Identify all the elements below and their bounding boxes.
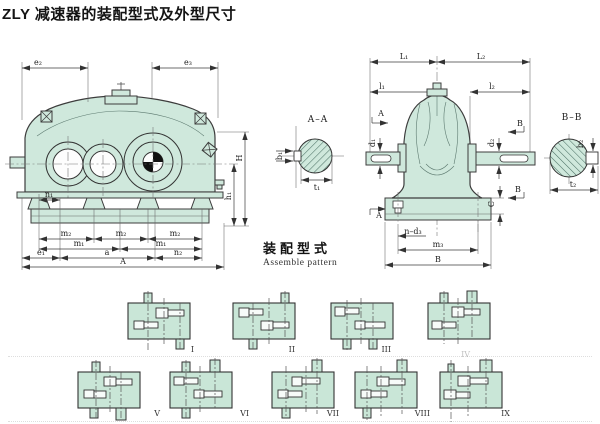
bolt-callout: n–d₃: [398, 227, 426, 236]
pattern-body: [170, 360, 232, 418]
assembly-pattern-7: VII: [268, 358, 348, 424]
section-view-aa: A–A b₁ t₁: [272, 108, 350, 196]
lifting-lug-right-icon: [195, 113, 206, 124]
section-view-bb: B–B b₂ t₂: [542, 106, 600, 202]
dim-label-A: A: [119, 257, 126, 266]
dim-label-m1: m₁: [156, 239, 167, 248]
section-marker-B-top: B: [508, 119, 524, 132]
pattern-label-6: VI: [239, 409, 249, 418]
dim-label-l1: l₁: [379, 82, 385, 91]
dim-label-e2: e₂: [34, 58, 42, 67]
svg-text:B: B: [515, 185, 521, 194]
section-aa-title: A–A: [307, 115, 329, 125]
dim-label-C: C: [487, 201, 496, 207]
pattern-label-9: IX: [501, 409, 510, 418]
assembly-pattern-3: III: [327, 288, 397, 358]
assemble-pattern-title-en: Assemble pattern: [263, 258, 337, 268]
housing-end-body: [366, 83, 535, 232]
pattern-body: [272, 360, 334, 418]
dim-label-n2: n₂: [174, 248, 182, 257]
dim-label-n1: n₁: [45, 190, 53, 199]
output-shaft-keyslot: [500, 155, 528, 162]
page-title: ZLY 减速器的装配型式及外型尺寸: [2, 3, 236, 24]
bearing-cover-right: [468, 144, 476, 172]
keyway: [294, 151, 301, 161]
pattern-body: [128, 293, 190, 349]
assembly-pattern-6: VI: [166, 358, 256, 424]
input-shaft-keyslot: [371, 155, 391, 162]
dim-label-e1: e₁: [37, 248, 45, 257]
section-marker-B-bottom: B: [508, 185, 524, 198]
foot-pad: [137, 198, 159, 209]
pattern-body: [78, 362, 140, 420]
top-cap: [433, 83, 441, 89]
dim-label-t2: t₂: [570, 180, 576, 189]
dim-label-d2: d₂: [487, 139, 496, 147]
assemble-pattern-heading: 装配型式 Assemble pattern: [263, 238, 337, 268]
pattern-body: [331, 303, 393, 349]
pattern-label-3: III: [382, 345, 391, 354]
assembly-pattern-1: I: [124, 288, 198, 358]
dim-label-b2: b₂: [576, 140, 585, 148]
section-marker-A-bottom: A: [370, 209, 386, 220]
assembly-pattern-9: IX: [436, 358, 514, 424]
dim-label-a: a: [105, 248, 110, 257]
dim-label-m2: m₂: [61, 229, 72, 238]
foot-pad: [83, 198, 105, 209]
pattern-label-2: II: [289, 345, 295, 354]
dim-label-e3: e₃: [184, 58, 192, 67]
pattern-body: [428, 291, 490, 339]
dim-label-B: B: [435, 255, 441, 264]
dim-label-m2: m₂: [170, 229, 181, 238]
dim-label-H: H: [235, 154, 244, 161]
dim-label-m2: m₂: [116, 229, 127, 238]
assembly-pattern-5: V: [74, 358, 164, 424]
pattern-label-5: V: [153, 409, 160, 418]
pattern-label-8: VIII: [414, 409, 430, 418]
dim-label-h1: h₁: [224, 192, 233, 200]
pattern-body: [233, 293, 295, 349]
keyway: [586, 152, 598, 164]
dim-label-m3: m₃: [433, 240, 444, 249]
svg-text:B: B: [517, 119, 523, 128]
foot-pad: [191, 198, 213, 209]
shaft-section-circle: [298, 139, 332, 173]
assembly-pattern-8: VIII: [351, 358, 435, 424]
section-marker-A-top: A: [372, 109, 388, 123]
pattern-label-7: VII: [326, 409, 339, 418]
dim-label-m1: m₁: [74, 239, 85, 248]
svg-text:A: A: [377, 109, 384, 118]
assembly-pattern-2: II: [229, 288, 301, 358]
lifting-lug-left-icon: [41, 111, 52, 122]
dim-label-n-d3: n–d₃: [404, 227, 421, 236]
oil-breather-cap: [105, 82, 137, 104]
section-bb-title: B–B: [562, 113, 583, 123]
dim-label-l2: l₂: [489, 82, 495, 91]
assemble-pattern-title-cn: 装配型式: [263, 238, 337, 257]
dim-label-L2: L₂: [477, 52, 486, 61]
pattern-body: [440, 360, 502, 408]
dim-label-d1: d₁: [368, 139, 377, 147]
assembly-pattern-4: IV: [424, 288, 494, 360]
svg-text:A: A: [375, 211, 382, 220]
dim-label-L1: L₁: [400, 52, 409, 61]
dim-label-b1: b₁: [275, 152, 284, 160]
input-shaft-stub: [10, 157, 25, 168]
reducer-end-view: L₁ L₂ l₁ l₂ A A B B d₁ d₂: [358, 46, 546, 278]
pattern-label-1: I: [191, 345, 194, 354]
reducer-side-view: e₂ e₃ H h₁ n₁ m₂ m₂ m₂ m₁ m₁ e₁ a n₂ A: [3, 46, 261, 278]
pattern-body: [355, 360, 417, 418]
dim-label-t1: t₁: [314, 183, 320, 192]
drain-bolt: [215, 180, 224, 185]
